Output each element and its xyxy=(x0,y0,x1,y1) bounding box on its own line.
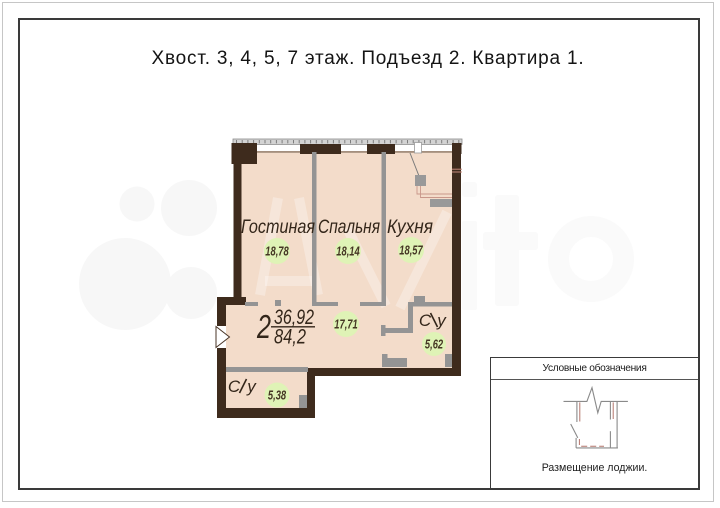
svg-text:2: 2 xyxy=(256,308,271,345)
svg-text:Гостиная: Гостиная xyxy=(241,217,315,238)
svg-text:84,2: 84,2 xyxy=(274,325,306,349)
svg-text:5,62: 5,62 xyxy=(425,338,444,352)
svg-text:17,71: 17,71 xyxy=(334,318,357,332)
svg-text:С: С xyxy=(419,311,432,330)
svg-text:18,78: 18,78 xyxy=(265,245,289,259)
svg-text:5,38: 5,38 xyxy=(268,389,287,403)
svg-text:Спальня: Спальня xyxy=(318,217,380,238)
svg-text:18,14: 18,14 xyxy=(336,245,360,259)
svg-text:С: С xyxy=(228,377,241,396)
svg-text:18,57: 18,57 xyxy=(399,244,423,258)
svg-text:у: у xyxy=(436,311,447,330)
svg-text:Кухня: Кухня xyxy=(387,217,433,238)
svg-text:у: у xyxy=(246,377,257,396)
